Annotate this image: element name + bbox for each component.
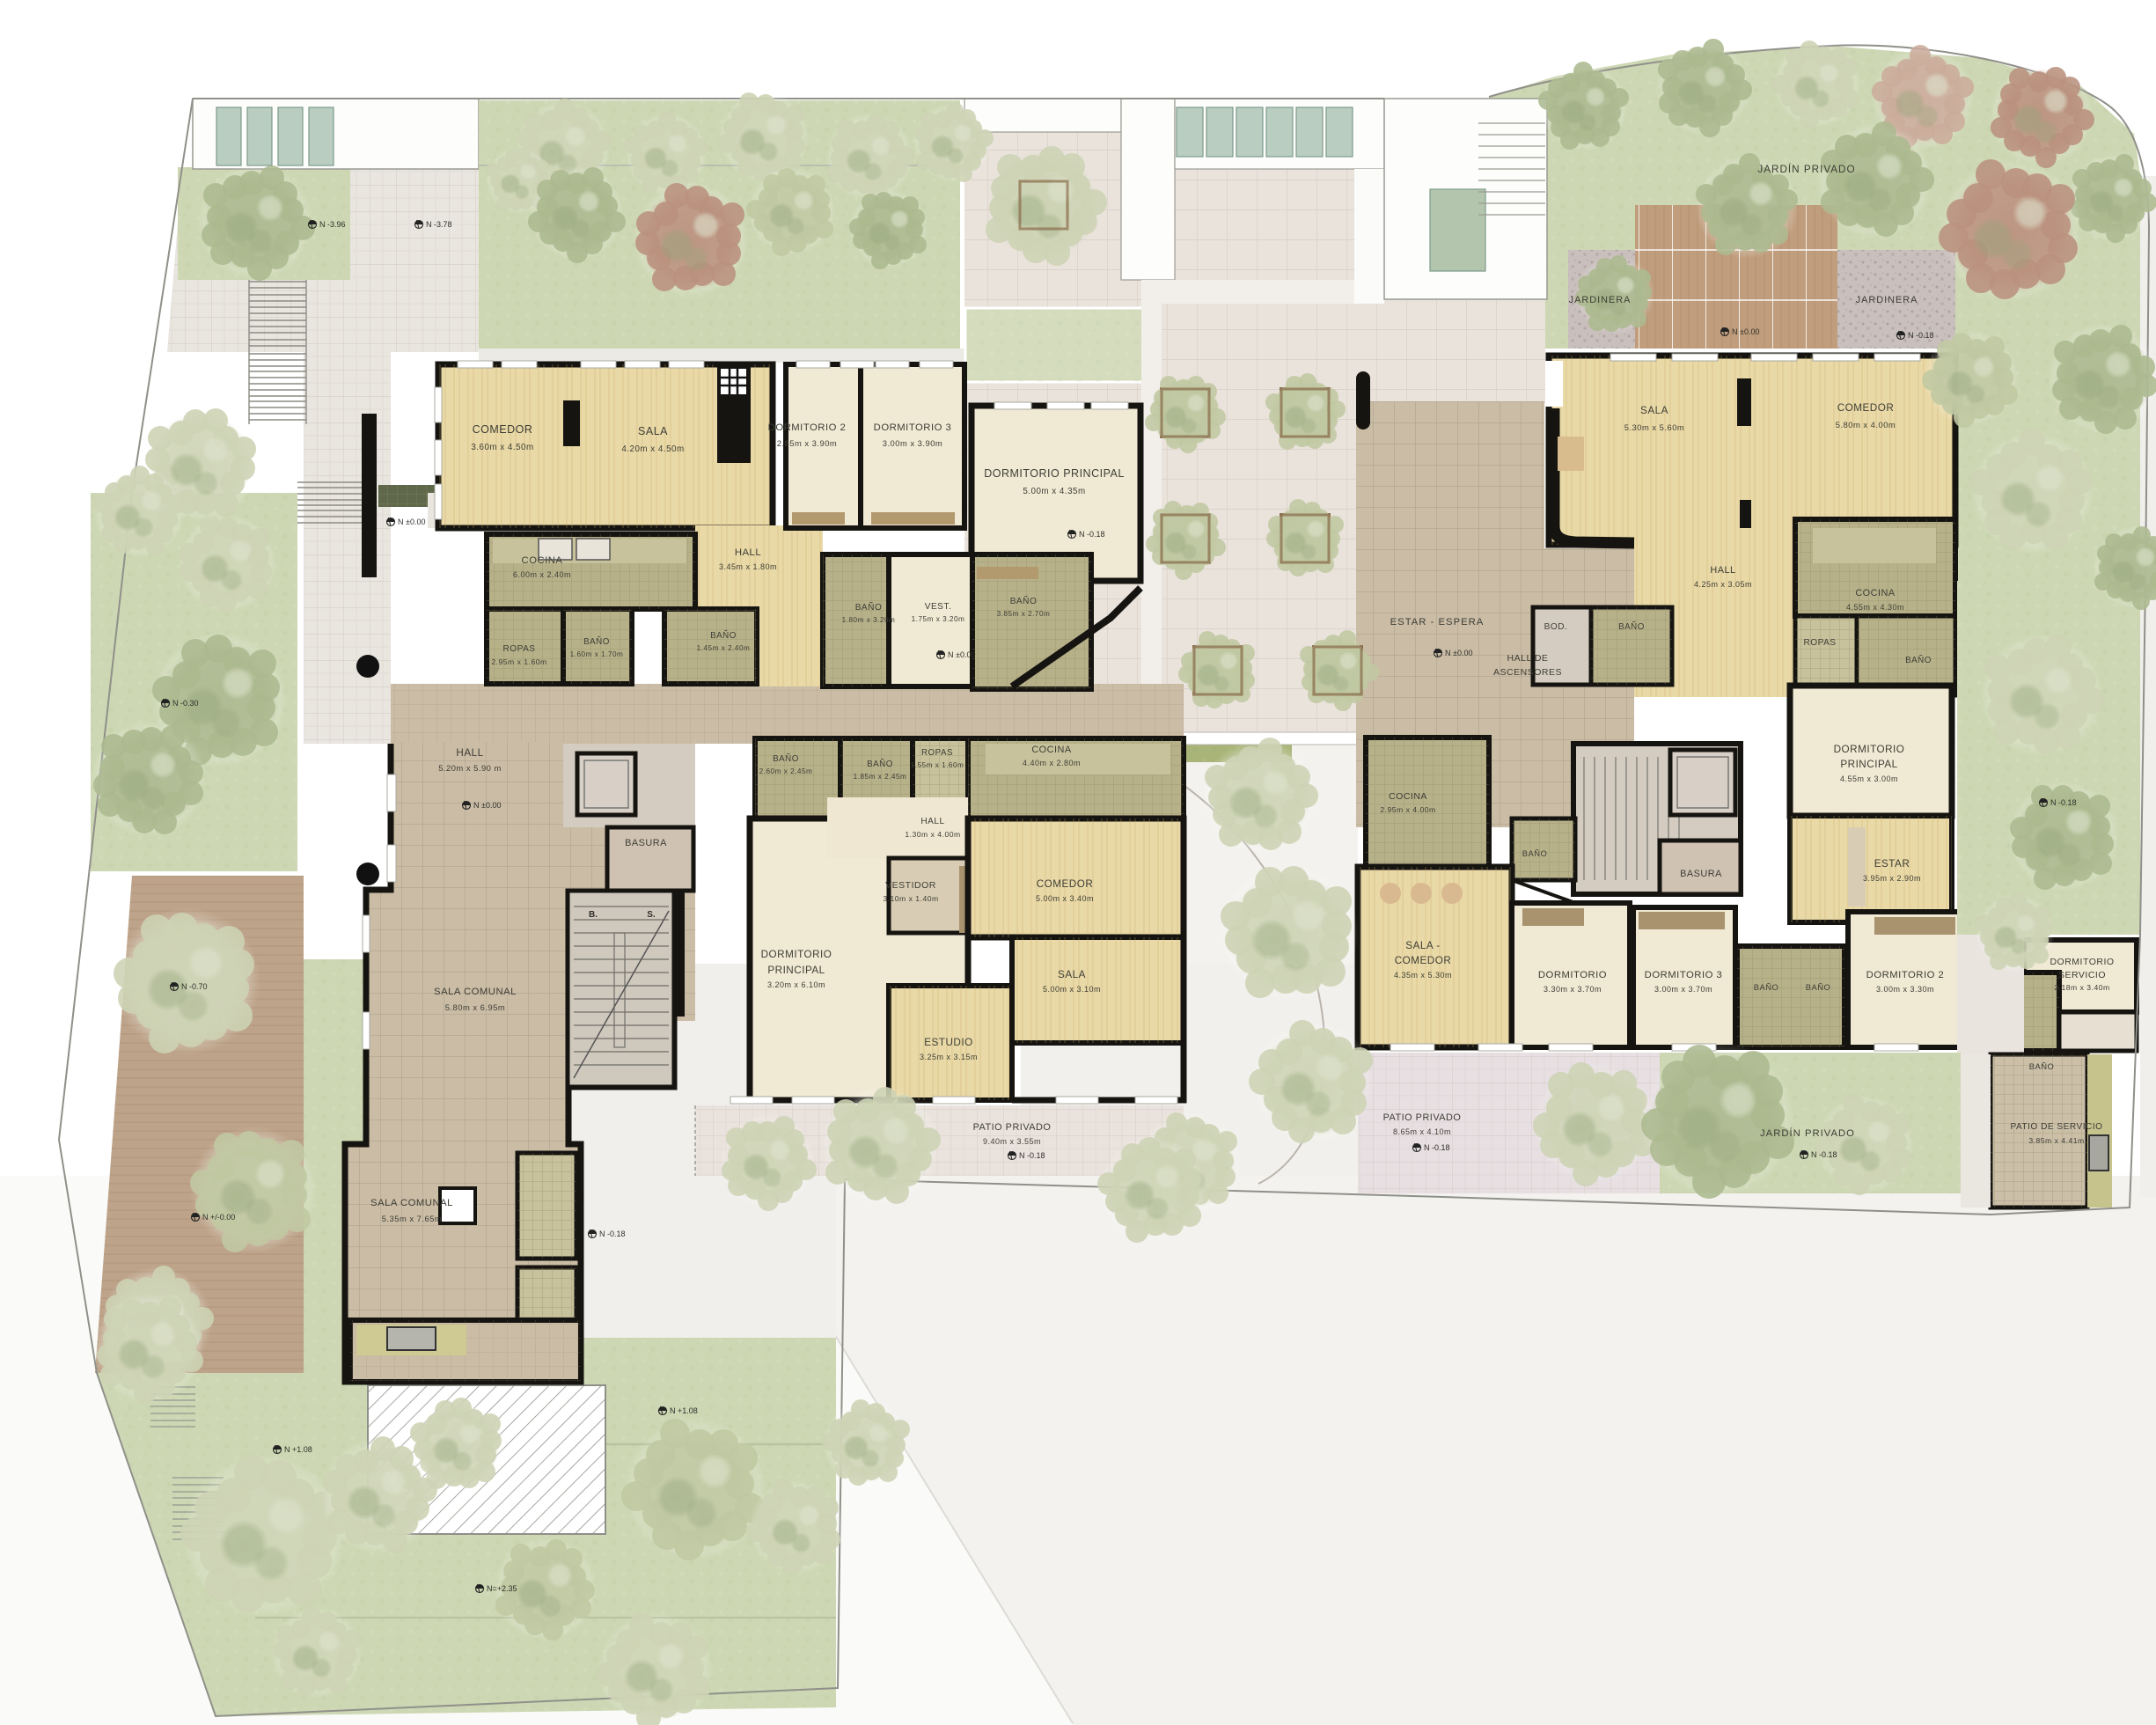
svg-text:N=+2.35: N=+2.35 [487,1584,517,1593]
svg-text:BAÑO: BAÑO [583,637,610,647]
svg-text:HALL DE: HALL DE [1507,653,1549,664]
svg-text:PRINCIPAL: PRINCIPAL [1840,759,1897,770]
svg-text:N -0.70: N -0.70 [181,982,208,991]
svg-text:ASCENSORES: ASCENSORES [1493,667,1562,678]
svg-text:4.55m x 4.30m: 4.55m x 4.30m [1846,603,1904,612]
svg-text:SERVICIO: SERVICIO [2058,970,2106,980]
svg-text:SALA -: SALA - [1405,940,1440,951]
svg-text:BAÑO: BAÑO [1905,656,1932,665]
svg-text:2.18m x 3.40m: 2.18m x 3.40m [2054,983,2109,992]
svg-text:3.00m x 3.30m: 3.00m x 3.30m [1876,985,1934,994]
svg-text:3.10m x 1.40m: 3.10m x 1.40m [883,894,938,903]
svg-text:N +1.08: N +1.08 [284,1445,312,1454]
svg-text:BAÑO: BAÑO [855,601,883,613]
svg-text:3.85m x 4.41m: 3.85m x 4.41m [2028,1136,2084,1145]
svg-text:DORMITORIO: DORMITORIO [2050,957,2114,967]
svg-text:5.00m x 3.10m: 5.00m x 3.10m [1043,985,1101,994]
svg-text:SALA COMUNAL: SALA COMUNAL [370,1198,453,1208]
svg-text:N -3.78: N -3.78 [426,220,452,229]
svg-text:COCINA: COCINA [1031,745,1072,755]
svg-text:4.20m x 4.50m: 4.20m x 4.50m [621,444,684,454]
svg-text:3.20m x 6.10m: 3.20m x 6.10m [767,980,825,989]
svg-text:N ±0.00: N ±0.00 [948,650,975,659]
svg-text:N -0.18: N -0.18 [599,1230,626,1238]
svg-text:JARDÍN PRIVADO: JARDÍN PRIVADO [1760,1127,1855,1139]
svg-text:N -0.18: N -0.18 [1019,1151,1045,1160]
svg-text:DORMITORIO PRINCIPAL: DORMITORIO PRINCIPAL [984,467,1125,480]
svg-text:ESTAR - ESPERA: ESTAR - ESPERA [1390,617,1485,628]
svg-text:JARDINERA: JARDINERA [1569,295,1632,305]
svg-text:PATIO PRIVADO: PATIO PRIVADO [973,1122,1052,1133]
svg-text:N ±0.00: N ±0.00 [1445,649,1472,657]
svg-text:5.35m x 7.65m: 5.35m x 7.65m [382,1214,443,1223]
svg-text:2.85m x 3.90m: 2.85m x 3.90m [777,438,838,448]
svg-text:3.95m x 2.90m: 3.95m x 2.90m [1863,874,1921,883]
svg-text:DORMITORIO 3: DORMITORIO 3 [1645,970,1723,980]
svg-text:1.45m x 2.40m: 1.45m x 2.40m [697,644,751,652]
svg-text:COCINA: COCINA [1389,791,1427,802]
svg-text:HALL: HALL [456,747,483,759]
svg-text:2.60m x 2.45m: 2.60m x 2.45m [759,767,813,775]
svg-text:5.00m x 3.40m: 5.00m x 3.40m [1036,894,1094,903]
svg-text:BAÑO: BAÑO [1010,595,1038,606]
svg-text:DORMITORIO: DORMITORIO [761,949,832,960]
svg-text:N +1.08: N +1.08 [670,1406,698,1415]
svg-text:COMEDOR: COMEDOR [473,423,533,436]
svg-text:JARDÍN PRIVADO: JARDÍN PRIVADO [1757,164,1855,175]
svg-text:3.00m x 3.70m: 3.00m x 3.70m [1654,985,1712,994]
svg-text:COCINA: COCINA [1855,588,1896,598]
svg-text:5.00m x 4.35m: 5.00m x 4.35m [1023,487,1085,496]
svg-text:5.80m x 6.95m: 5.80m x 6.95m [445,1002,506,1012]
svg-text:3.60m x 4.50m: 3.60m x 4.50m [471,443,533,452]
svg-text:5.20m x 5.90 m: 5.20m x 5.90 m [438,763,502,773]
svg-text:ESTAR: ESTAR [1874,858,1910,870]
svg-text:SALA: SALA [1058,969,1086,980]
svg-text:N -0.18: N -0.18 [1908,331,1934,340]
svg-text:BAÑO: BAÑO [1806,982,1831,992]
svg-text:N -0.18: N -0.18 [1811,1150,1837,1159]
svg-text:DORMITORIO: DORMITORIO [1538,970,1607,980]
svg-text:DORMITORIO 3: DORMITORIO 3 [874,422,952,433]
svg-text:SALA COMUNAL: SALA COMUNAL [434,987,517,997]
svg-text:1.55m x 1.60m: 1.55m x 1.60m [911,761,964,769]
svg-text:DORMITORIO 2: DORMITORIO 2 [1866,970,1945,980]
svg-text:N ±0.00: N ±0.00 [1732,327,1759,336]
svg-text:3.85m x 2.70m: 3.85m x 2.70m [997,610,1051,618]
svg-text:3.30m x 3.70m: 3.30m x 3.70m [1544,985,1602,994]
svg-text:S.: S. [647,910,656,920]
svg-text:N -0.30: N -0.30 [172,699,199,708]
svg-text:4.55m x 3.00m: 4.55m x 3.00m [1840,774,1898,783]
svg-text:8.65m x 4.10m: 8.65m x 4.10m [1393,1127,1451,1136]
svg-text:BASURA: BASURA [625,838,667,848]
svg-text:N -3.96: N -3.96 [319,220,346,229]
svg-text:PATIO PRIVADO: PATIO PRIVADO [1383,1112,1462,1123]
svg-text:1.75m x 3.20m: 1.75m x 3.20m [912,615,965,623]
svg-text:ESTUDIO: ESTUDIO [924,1037,972,1048]
svg-text:SALA: SALA [1640,405,1668,416]
svg-text:N -0.18: N -0.18 [1424,1143,1450,1152]
svg-text:1.80m x 3.20m: 1.80m x 3.20m [842,616,896,624]
svg-text:SALA: SALA [638,425,668,437]
svg-text:N -0.18: N -0.18 [2050,798,2077,807]
svg-text:HALL: HALL [1710,565,1735,576]
svg-text:5.30m x 5.60m: 5.30m x 5.60m [1624,422,1685,432]
svg-text:N -0.18: N -0.18 [1079,530,1105,539]
svg-text:VESTIDOR: VESTIDOR [885,880,936,891]
svg-text:VEST.: VEST. [925,602,952,612]
svg-text:6.00m x 2.40m: 6.00m x 2.40m [513,570,571,579]
svg-text:BAÑO: BAÑO [1618,622,1645,632]
svg-text:BAÑO: BAÑO [1522,848,1548,858]
svg-text:N ±0.00: N ±0.00 [473,801,501,810]
svg-text:BAÑO: BAÑO [710,631,737,641]
svg-text:4.25m x 3.05m: 4.25m x 3.05m [1694,580,1752,589]
svg-text:1.60m x 1.70m: 1.60m x 1.70m [570,650,624,658]
svg-text:3.00m x 3.90m: 3.00m x 3.90m [883,438,943,448]
svg-text:3.25m x 3.15m: 3.25m x 3.15m [920,1053,978,1061]
svg-text:HALL: HALL [920,817,944,826]
svg-text:PATIO DE SERVICIO: PATIO DE SERVICIO [2011,1122,2103,1132]
svg-text:BASURA: BASURA [1680,869,1722,879]
svg-text:1.85m x 2.45m: 1.85m x 2.45m [854,773,907,781]
svg-text:ROPAS: ROPAS [921,748,953,758]
svg-text:COMEDOR: COMEDOR [1037,878,1094,890]
svg-text:PRINCIPAL: PRINCIPAL [767,965,825,976]
svg-text:BAÑO: BAÑO [1754,982,1779,992]
svg-text:4.40m x 2.80m: 4.40m x 2.80m [1023,759,1081,767]
svg-text:COMEDOR: COMEDOR [1837,402,1895,414]
svg-text:9.40m x 3.55m: 9.40m x 3.55m [983,1137,1041,1146]
svg-text:N ±0.00: N ±0.00 [398,517,425,526]
svg-text:3.45m x 1.80m: 3.45m x 1.80m [719,562,777,571]
svg-text:N +/-0.00: N +/-0.00 [202,1213,235,1222]
svg-text:1.30m x 4.00m: 1.30m x 4.00m [905,830,960,839]
svg-text:JARDINERA: JARDINERA [1856,295,1918,305]
svg-text:5.80m x 4.00m: 5.80m x 4.00m [1836,420,1896,429]
svg-text:BOD.: BOD. [1544,622,1568,632]
svg-text:B.: B. [589,910,598,920]
svg-text:DORMITORIO: DORMITORIO [1834,744,1905,755]
svg-text:BAÑO: BAÑO [773,754,799,764]
svg-text:4.35m x 5.30m: 4.35m x 5.30m [1394,971,1452,980]
svg-text:COMEDOR: COMEDOR [1395,955,1452,966]
svg-text:HALL: HALL [735,547,761,558]
svg-text:ROPAS: ROPAS [1803,638,1836,648]
svg-text:BAÑO: BAÑO [2029,1061,2055,1071]
svg-text:2.95m x 4.00m: 2.95m x 4.00m [1380,805,1435,814]
svg-text:2.95m x 1.60m: 2.95m x 1.60m [491,657,546,666]
svg-text:DORMITORIO 2: DORMITORIO 2 [768,422,847,433]
svg-text:ROPAS: ROPAS [502,644,535,654]
svg-text:COCINA: COCINA [522,555,563,566]
svg-text:BAÑO: BAÑO [867,760,893,769]
